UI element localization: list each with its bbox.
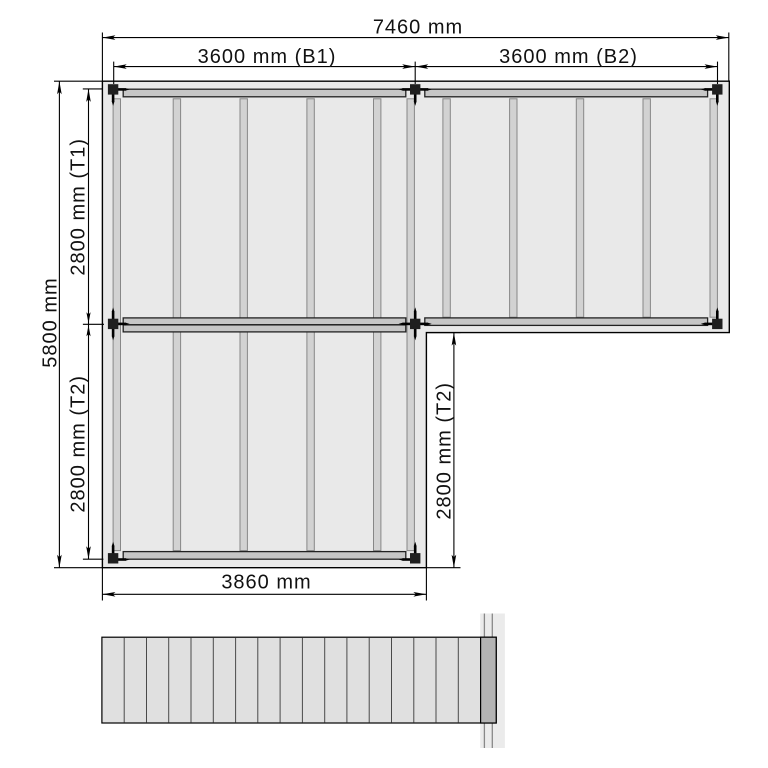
svg-text:3860 mm: 3860 mm — [221, 572, 311, 594]
svg-text:7460 mm: 7460 mm — [373, 16, 463, 38]
svg-text:2800 mm (T1): 2800 mm (T1) — [67, 138, 89, 276]
svg-text:3600 mm (B2): 3600 mm (B2) — [499, 46, 638, 68]
svg-text:2800 mm (T2): 2800 mm (T2) — [67, 375, 89, 513]
svg-text:5800 mm: 5800 mm — [39, 277, 61, 367]
svg-text:2800 mm (T2): 2800 mm (T2) — [434, 382, 456, 520]
svg-text:3600 mm (B1): 3600 mm (B1) — [198, 46, 337, 68]
